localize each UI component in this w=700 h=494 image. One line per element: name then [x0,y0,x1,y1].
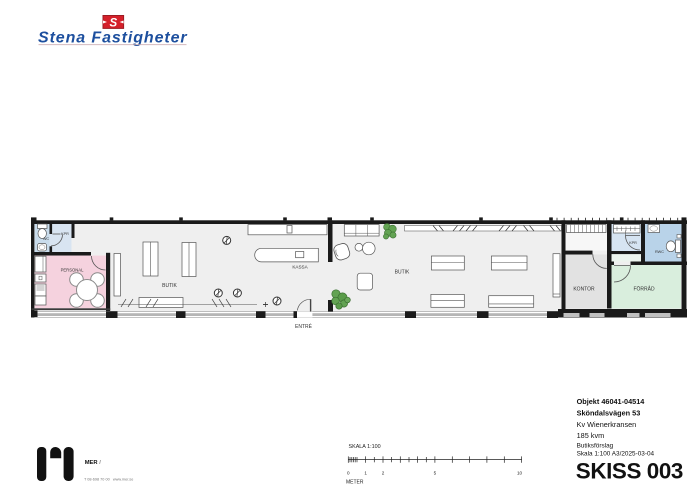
svg-text:Stena Fastigheter: Stena Fastigheter [38,30,188,47]
svg-text:S: S [109,18,117,30]
svg-text:T 08-698 70 00 www.mer.se: T 08-698 70 00 www.mer.se [84,478,133,482]
svg-text:PERSONAL: PERSONAL [61,268,84,273]
svg-text:Kv Wienerkransen: Kv Wienerkransen [577,420,637,429]
svg-text:Objekt 46041-04514: Objekt 46041-04514 [577,397,646,406]
svg-text:ENTRÉ: ENTRÉ [295,323,313,330]
svg-text:Skala 1:100 A3/2025-03-04: Skala 1:100 A3/2025-03-04 [577,451,655,458]
svg-text:5: 5 [434,471,437,476]
svg-text:KONTOR: KONTOR [573,286,595,292]
svg-text:185 kvm: 185 kvm [577,431,605,440]
svg-text:BUTIK: BUTIK [395,270,410,276]
svg-text:1: 1 [364,471,367,476]
svg-text:RWC: RWC [655,250,664,254]
svg-text:KASSA: KASSA [292,265,308,270]
svg-text:MER /: MER / [85,460,102,466]
svg-text:SKISS 003: SKISS 003 [576,458,683,483]
svg-text:10: 10 [517,471,523,476]
svg-text:0: 0 [347,471,350,476]
svg-text:KPR: KPR [629,241,637,245]
svg-text:FÖRRÅD: FÖRRÅD [633,286,655,293]
svg-text:Sköndalsvägen 53: Sköndalsvägen 53 [577,408,641,417]
svg-text:METER: METER [346,480,364,486]
svg-text:SKALA 1:100: SKALA 1:100 [349,444,381,450]
svg-text:2: 2 [382,471,385,476]
svg-text:Butiksförslag: Butiksförslag [577,442,614,449]
svg-text:BUTIK: BUTIK [162,283,177,289]
